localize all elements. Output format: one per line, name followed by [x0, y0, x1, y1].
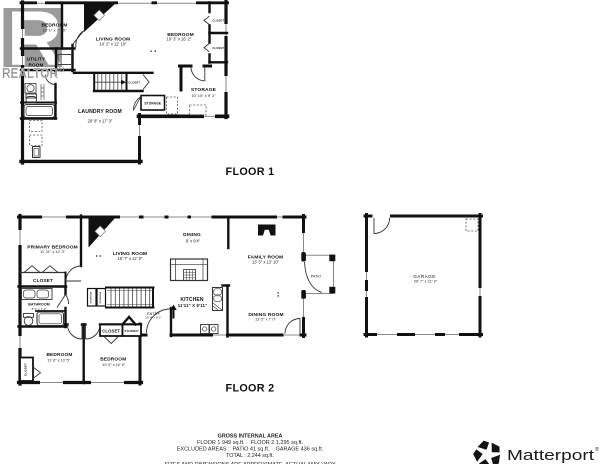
svg-text:R: R — [60, 67, 63, 72]
svg-text:10' 3" x 16' 2": 10' 3" x 16' 2" — [167, 37, 192, 42]
svg-text:EXCLUDED AREAS : PATIO 41 sq.: EXCLUDED AREAS : PATIO 41 sq.ft. GARAGE … — [177, 447, 324, 453]
svg-text:11'11" X 9'11": 11'11" X 9'11" — [178, 303, 208, 308]
svg-text:®: ® — [595, 446, 599, 453]
svg-text:BEDROOM: BEDROOM — [100, 357, 126, 363]
svg-text:10' 4" x 9' 1": 10' 4" x 9' 1" — [145, 315, 161, 319]
svg-text:CLOSET: CLOSET — [212, 46, 224, 50]
svg-text:FLOOR 1: FLOOR 1 — [226, 166, 275, 178]
svg-text:12' 1" x 7' 10": 12' 1" x 7' 10" — [42, 28, 67, 33]
svg-text:FLOOR 1 949 sq.ft. FLOOR 2: FLOOR 1 949 sq.ft. FLOOR 2 1,295 sq.ft. — [197, 440, 304, 446]
svg-text:UTILITY: UTILITY — [27, 56, 45, 61]
svg-text:20' 7" x 21' 2": 20' 7" x 21' 2" — [414, 278, 438, 283]
svg-text:PATIO: PATIO — [311, 274, 322, 278]
svg-text:TOTAL : 2,244 sq.ft.: TOTAL : 2,244 sq.ft. — [226, 453, 274, 459]
svg-text:8' 0" x 7' 4": 8' 0" x 7' 4" — [32, 307, 47, 311]
svg-text:14' 2" x 12' 10": 14' 2" x 12' 10" — [99, 41, 127, 46]
svg-text:BATHROOM: BATHROOM — [28, 303, 50, 307]
svg-text:GROSS INTERNAL AREA: GROSS INTERNAL AREA — [218, 434, 283, 440]
svg-text:10' 10" x 9' 2": 10' 10" x 9' 2" — [191, 93, 216, 98]
svg-text:15' 7" x 12' 9": 15' 7" x 12' 9" — [118, 256, 143, 261]
svg-text:STORAGE: STORAGE — [99, 291, 102, 303]
svg-text:CLOSET: CLOSET — [212, 19, 224, 23]
svg-text:Matterport: Matterport — [507, 447, 595, 464]
svg-text:13' 5" x 13' 10": 13' 5" x 13' 10" — [252, 259, 280, 264]
svg-text:20' 8" x 17' 3": 20' 8" x 17' 3" — [88, 118, 113, 123]
svg-text:CLOSET: CLOSET — [102, 329, 120, 334]
svg-text:CLOSET: CLOSET — [24, 363, 28, 376]
svg-text:STORAGE: STORAGE — [90, 291, 93, 303]
svg-text:11' 11" x 12' 3": 11' 11" x 12' 3" — [40, 249, 66, 254]
svg-text:CLOSET: CLOSET — [128, 81, 140, 85]
svg-text:STAIRWAY: STAIRWAY — [124, 329, 139, 333]
svg-text:FLOOR 2: FLOOR 2 — [226, 383, 275, 395]
svg-text:LAUNDRY ROOM: LAUNDRY ROOM — [78, 109, 122, 115]
svg-text:BEDROOM: BEDROOM — [46, 352, 72, 358]
svg-text:8' x 9'4": 8' x 9'4" — [186, 238, 201, 243]
svg-text:DINING: DINING — [183, 232, 201, 238]
svg-text:13' 5" x 7' 0": 13' 5" x 7' 0" — [255, 317, 276, 321]
svg-text:CLOSET: CLOSET — [33, 278, 53, 283]
svg-text:10' 5" x 10' 5": 10' 5" x 10' 5" — [102, 363, 126, 367]
svg-text:11' 6" x 10' 5": 11' 6" x 10' 5" — [47, 358, 70, 362]
svg-text:REALTOR: REALTOR — [2, 66, 58, 82]
svg-text:STORAGE: STORAGE — [144, 101, 161, 105]
